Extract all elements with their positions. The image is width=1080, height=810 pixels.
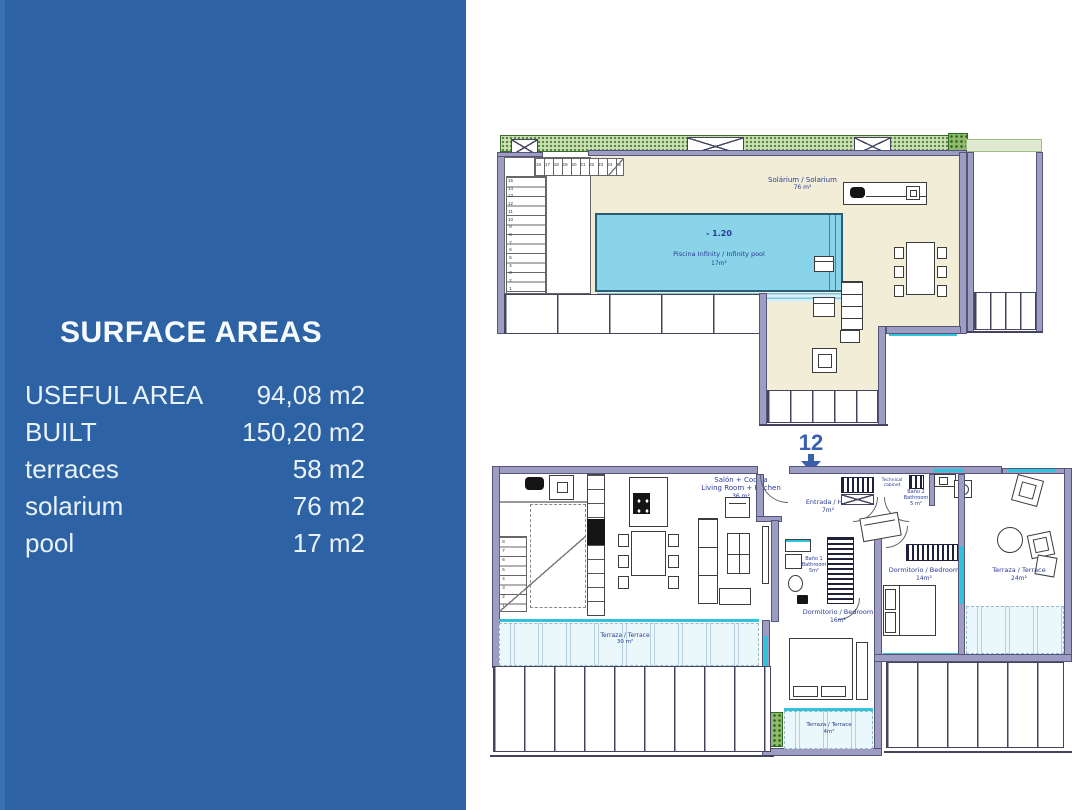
chair <box>894 285 904 297</box>
row-value: 150,20 m2 <box>242 414 365 451</box>
wardrobe <box>906 544 960 561</box>
wall <box>771 520 779 622</box>
pool-area-label: 17m² <box>597 260 841 267</box>
hob-icon <box>633 493 650 514</box>
wall <box>874 530 882 756</box>
wall <box>886 326 961 334</box>
outdoor-sofa <box>841 281 863 330</box>
kitchen-cabinets <box>587 474 605 616</box>
stair-lower-numbers: 151413121110987654321 <box>506 177 516 293</box>
railing <box>886 662 1064 748</box>
wall <box>759 293 767 426</box>
stair-direction-line <box>499 536 586 612</box>
wall <box>878 326 886 426</box>
railing <box>974 292 1036 330</box>
wall <box>789 466 1002 474</box>
lounge-chair <box>813 297 835 317</box>
wardrobe <box>827 537 854 604</box>
railing <box>767 390 878 423</box>
bedroom1-label: Dormitorio / Bedroom 16m² <box>798 609 878 624</box>
railing-base-line <box>967 331 1043 333</box>
pillow <box>821 686 846 697</box>
dining-table <box>631 531 666 576</box>
technical-cabinet-label: Technical cabinet <box>875 478 909 489</box>
fixture-icon <box>797 595 808 604</box>
floorplan-brochure-page: SURFACE AREAS USEFUL AREA 94,08 m2 BUILT… <box>0 0 1080 810</box>
wall <box>492 466 758 474</box>
outdoor-kitchen-counter <box>843 182 927 205</box>
side-table <box>840 330 860 343</box>
window-glazing <box>1008 469 1056 472</box>
table-row: solarium 76 m2 <box>25 488 365 525</box>
sun-loungers-area <box>966 606 1064 654</box>
bbq-icon <box>850 187 865 198</box>
surface-areas-table: USEFUL AREA 94,08 m2 BUILT 150,20 m2 ter… <box>25 377 365 562</box>
stair-arrow-icon <box>608 158 624 176</box>
pool-name-label: Piscina Infinity / Infinity pool <box>597 251 841 259</box>
wall <box>588 150 967 156</box>
pillow <box>885 612 896 633</box>
sink-icon <box>525 477 544 490</box>
lounge-chair <box>814 256 834 272</box>
row-value: 76 m2 <box>293 488 365 525</box>
terrace-bottom-label: Terraza / Terrace 30 m² <box>585 632 665 646</box>
shower-glass <box>786 540 810 542</box>
ottoman <box>719 588 751 605</box>
row-label: terraces <box>25 451 119 488</box>
railing-base-line <box>759 424 888 426</box>
table-row: BUILT 150,20 m2 <box>25 414 365 451</box>
infinity-pool: - 1.20 Piscina Infinity / Infinity pool … <box>595 213 843 292</box>
chair <box>937 285 947 297</box>
chair <box>618 534 629 547</box>
railing-base-line <box>490 755 774 757</box>
wall <box>1036 152 1043 332</box>
window-glazing <box>960 546 964 604</box>
toilet-icon <box>788 575 803 592</box>
chair <box>618 576 629 589</box>
railing-base-line <box>884 751 1072 753</box>
railing <box>493 666 771 752</box>
pillow <box>885 589 896 610</box>
terrace-right-label: Terraza / Terrace 24m² <box>986 567 1052 582</box>
lounge-chair <box>812 348 837 373</box>
chair <box>937 266 947 278</box>
bedroom2-label: Dormitorio / Bedroom 14m² <box>888 567 960 582</box>
sofa <box>698 518 718 604</box>
round-table <box>997 527 1023 553</box>
page-title: SURFACE AREAS <box>60 316 322 350</box>
row-label: solarium <box>25 488 123 525</box>
chair <box>668 555 679 568</box>
oven-icon <box>587 519 605 545</box>
wall <box>967 152 974 332</box>
greenery-strip-light <box>966 139 1042 152</box>
surface-areas-panel: SURFACE AREAS USEFUL AREA 94,08 m2 BUILT… <box>0 0 466 810</box>
outdoor-chair <box>1011 474 1044 507</box>
row-label: BUILT <box>25 414 97 451</box>
appliance-icon <box>549 475 574 500</box>
wardrobe <box>841 477 874 493</box>
chair <box>618 555 629 568</box>
partition-line <box>500 501 590 503</box>
wardrobe <box>856 642 868 700</box>
tv-unit <box>762 526 769 584</box>
wall <box>1064 468 1072 660</box>
chair <box>894 247 904 259</box>
pool-depth-label: - 1.20 <box>597 229 841 239</box>
coffee-table <box>727 533 750 574</box>
row-value: 58 m2 <box>293 451 365 488</box>
pillow <box>793 686 818 697</box>
bathroom1-label: Baño 1 Bathroom 5m² <box>798 556 830 574</box>
dining-table <box>906 242 935 295</box>
window-glazing <box>499 619 759 622</box>
row-value: 17 m2 <box>293 525 365 562</box>
row-label: pool <box>25 525 74 562</box>
window-glazing <box>934 469 964 472</box>
row-value: 94,08 m2 <box>257 377 365 414</box>
technical-cabinet <box>909 475 924 489</box>
wall <box>959 152 967 334</box>
washbasin-icon <box>934 474 956 487</box>
wall <box>874 654 1072 662</box>
table-row: USEFUL AREA 94,08 m2 <box>25 377 365 414</box>
sink-icon <box>906 186 920 200</box>
railing <box>504 294 762 334</box>
table-row: terraces 58 m2 <box>25 451 365 488</box>
chair <box>937 247 947 259</box>
door-arc <box>886 526 908 548</box>
chair <box>668 534 679 547</box>
window-glazing <box>889 334 957 336</box>
chair <box>894 266 904 278</box>
terrace-small-label: Terraza / Terrace 4m² <box>800 722 858 735</box>
table-row: pool 17 m2 <box>25 525 365 562</box>
row-label: USEFUL AREA <box>25 377 203 414</box>
chair <box>668 576 679 589</box>
wall <box>762 748 882 756</box>
armchair <box>725 497 750 518</box>
unit-number: 12 <box>792 430 830 456</box>
stair-void <box>546 176 590 293</box>
